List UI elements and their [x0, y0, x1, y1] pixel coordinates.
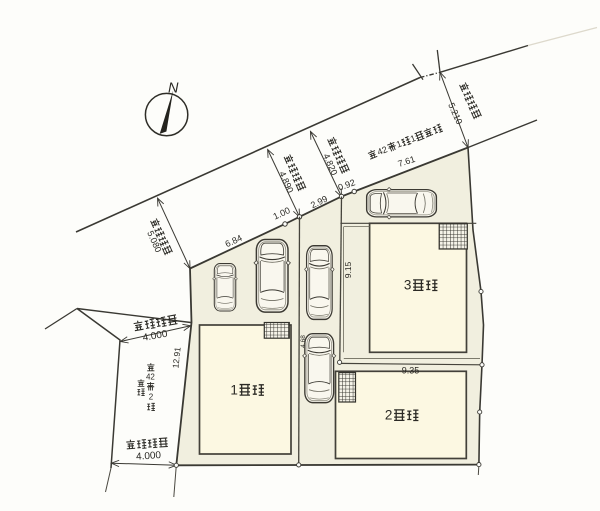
svg-text:42: 42	[146, 373, 155, 382]
svg-text:2: 2	[149, 392, 154, 401]
svg-text:9.15: 9.15	[343, 261, 353, 278]
svg-text:4.68: 4.68	[300, 335, 307, 348]
svg-text:1: 1	[230, 382, 238, 397]
svg-text:2: 2	[385, 408, 393, 423]
svg-text:9.35: 9.35	[402, 366, 420, 376]
svg-text:3: 3	[404, 278, 412, 293]
svg-text:4.000: 4.000	[136, 450, 162, 463]
svg-text:N: N	[168, 81, 179, 97]
